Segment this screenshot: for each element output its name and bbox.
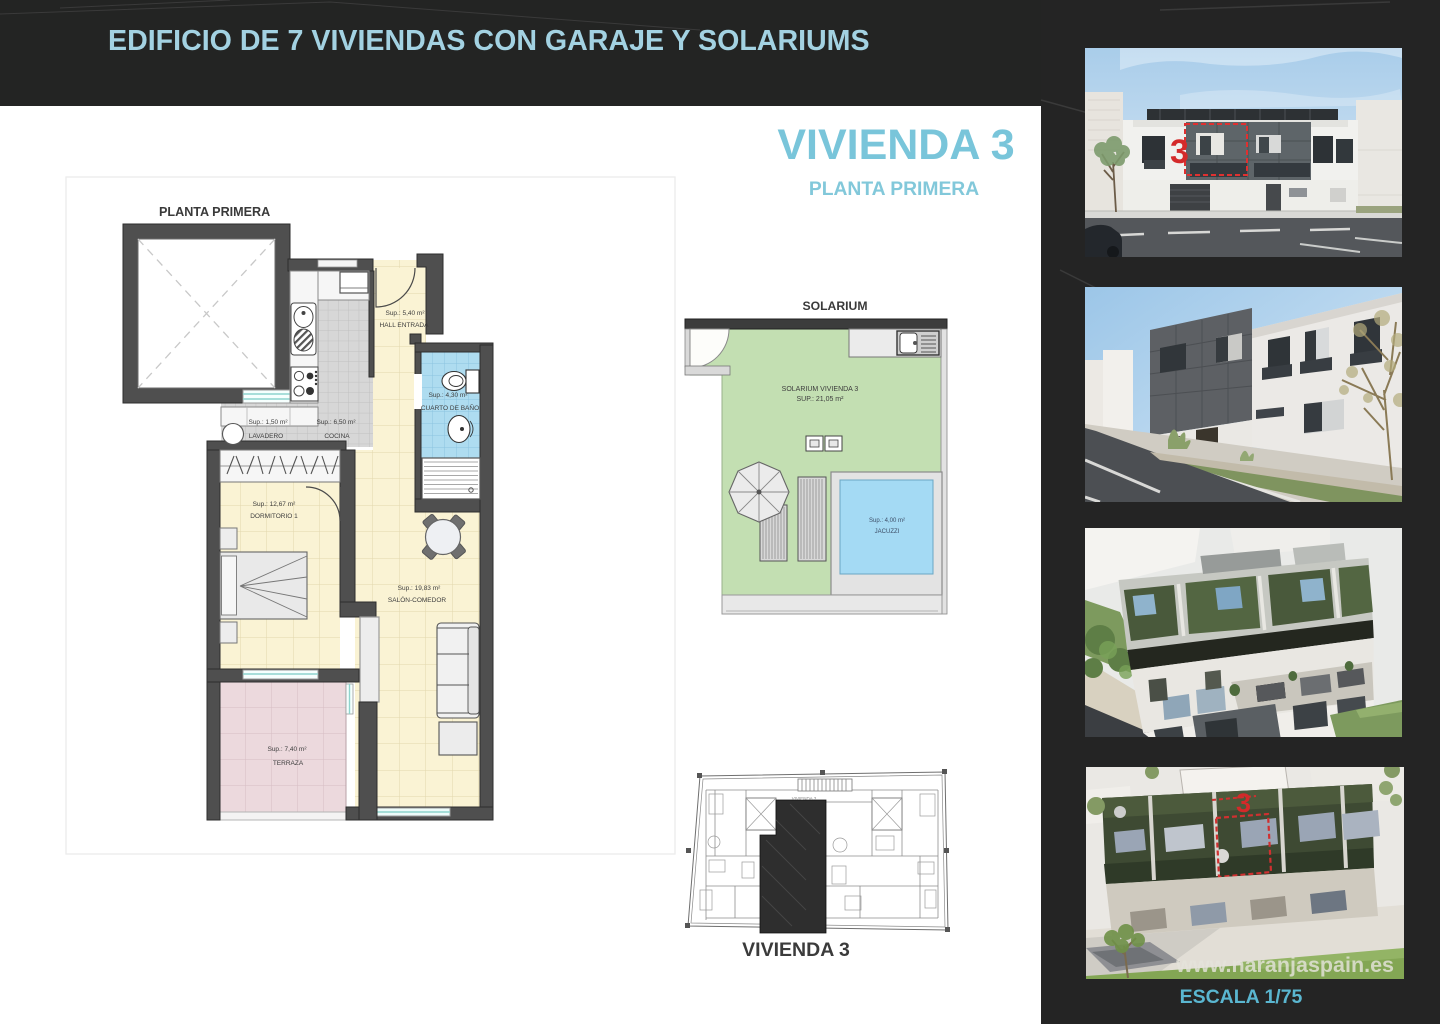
svg-text:DORMITORIO 1: DORMITORIO 1 [250,513,298,520]
svg-text:SOLARIUM: SOLARIUM [803,299,868,313]
svg-text:Sup.: 5,40 m²: Sup.: 5,40 m² [385,310,425,317]
svg-text:www.naranjaspain.es: www.naranjaspain.es [1175,953,1394,977]
svg-text:CUARTO DE BAÑO: CUARTO DE BAÑO [421,403,479,412]
svg-text:Sup.: 19,83 m²: Sup.: 19,83 m² [398,585,441,592]
svg-text:Sup.: 1,50 m²: Sup.: 1,50 m² [248,419,288,426]
svg-text:Sup.: 4,00 m²: Sup.: 4,00 m² [869,518,905,524]
svg-text:COCINA: COCINA [324,433,350,440]
svg-text:PLANTA PRIMERA: PLANTA PRIMERA [809,179,979,200]
svg-text:VIVIENDA 3: VIVIENDA 3 [792,796,817,801]
svg-text:3: 3 [1236,788,1251,818]
svg-text:HALL ENTRADA: HALL ENTRADA [380,322,430,329]
svg-text:EDIFICIO DE 7 VIVIENDAS CON GA: EDIFICIO DE 7 VIVIENDAS CON GARAJE Y SOL… [108,25,870,57]
svg-text:SALÓN-COMEDOR: SALÓN-COMEDOR [388,595,446,604]
svg-text:VIVIENDA 3: VIVIENDA 3 [777,121,1014,169]
svg-text:PLANTA PRIMERA: PLANTA PRIMERA [159,205,270,219]
svg-text:Sup.: 6,50 m²: Sup.: 6,50 m² [316,419,356,426]
svg-text:Sup.: 7,40 m²: Sup.: 7,40 m² [267,746,307,753]
svg-text:SUP.: 21,05 m²: SUP.: 21,05 m² [797,396,845,403]
svg-text:JACUZZI: JACUZZI [875,529,900,535]
svg-text:TERRAZA: TERRAZA [273,760,304,767]
svg-text:3: 3 [1170,133,1189,171]
svg-text:Sup.: 12,67 m²: Sup.: 12,67 m² [253,501,296,508]
svg-text:VIVIENDA 3: VIVIENDA 3 [742,939,850,961]
svg-text:SOLARIUM VIVIENDA 3: SOLARIUM VIVIENDA 3 [782,386,859,393]
svg-text:Sup.: 4,30 m²: Sup.: 4,30 m² [428,392,468,399]
svg-text:ESCALA 1/75: ESCALA 1/75 [1180,986,1303,1008]
svg-text:LAVADERO: LAVADERO [249,433,283,440]
